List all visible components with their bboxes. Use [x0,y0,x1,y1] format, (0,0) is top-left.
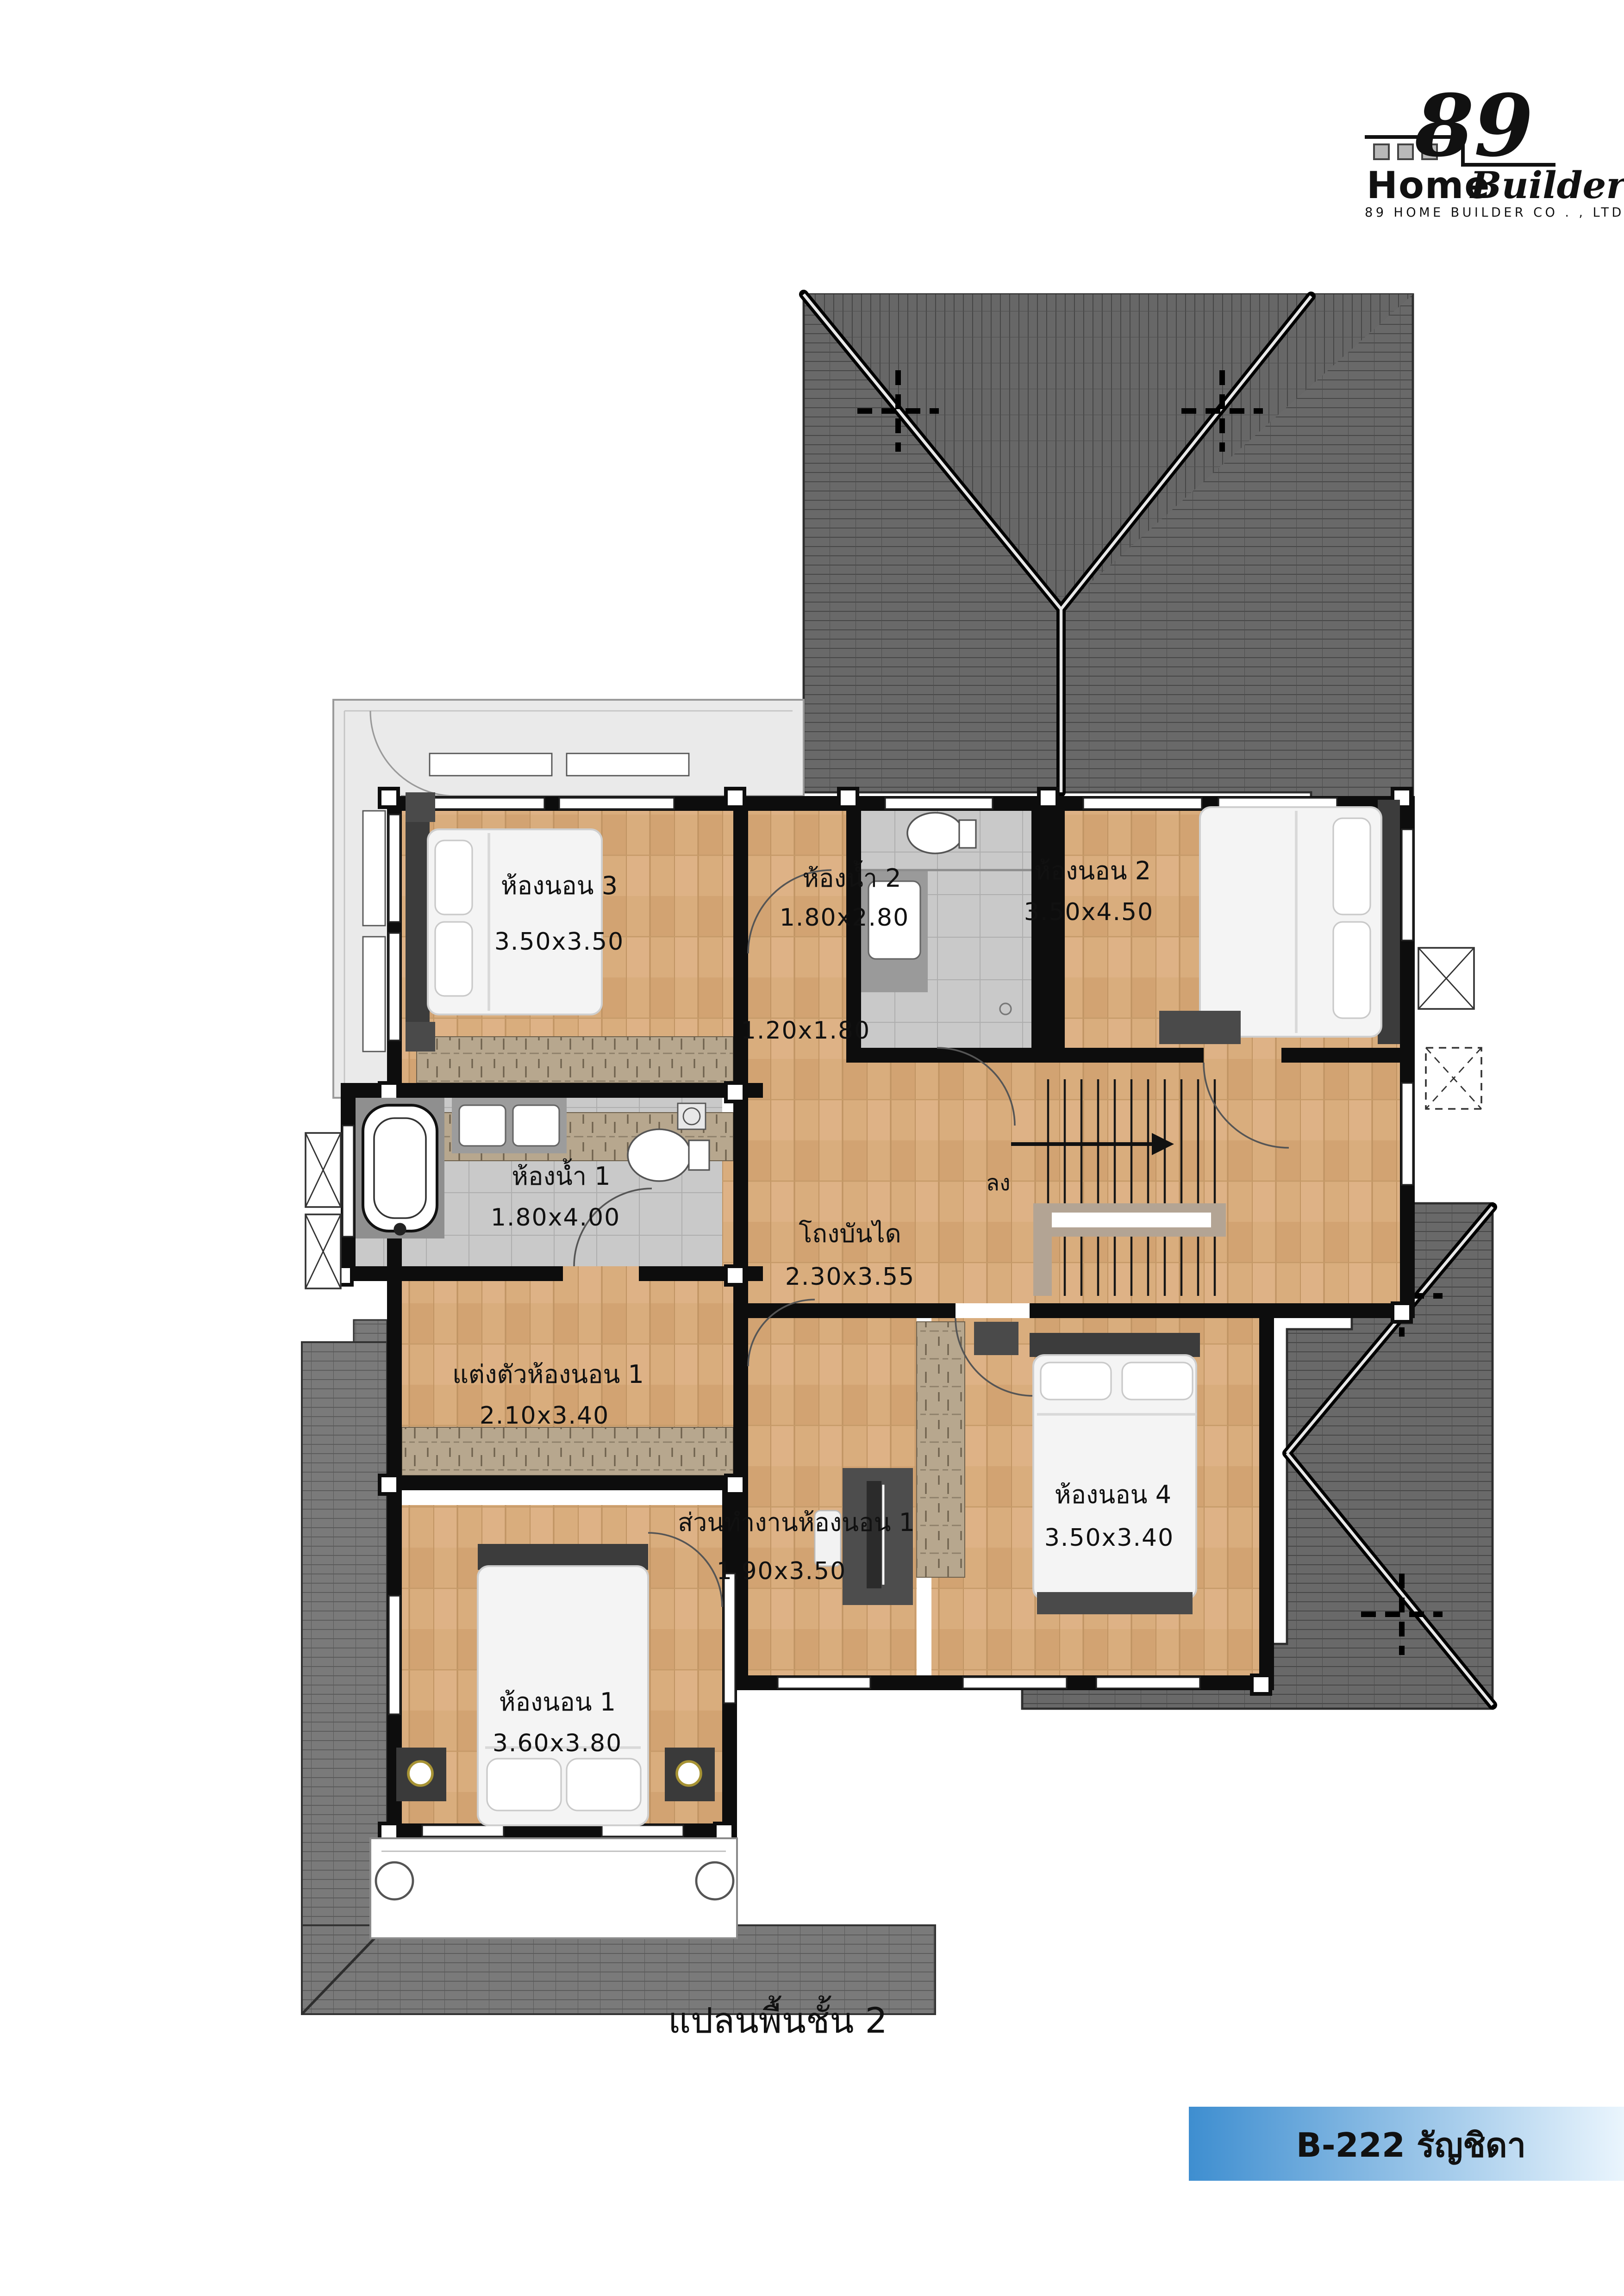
dressing-size: 2.10x3.40 [480,1402,609,1430]
stairhall-name: โถงบันได [799,1219,901,1248]
balcony-column-icon [376,1862,413,1899]
bedroom3-wardrobe [417,1037,733,1083]
dressing-name: แต่งตัวห้องนอน 1 [452,1360,644,1389]
toilet-icon [628,1129,691,1181]
work-area-name: ส่วนทำงานห้องนอน 1 [678,1508,915,1537]
dressing-wardrobe-bottom [402,1427,733,1475]
bedroom1-size: 3.60x3.80 [493,1730,622,1757]
bathroom2-size: 1.80x2.80 [780,904,909,932]
plan-caption: แปลนพื้นชั้น 2 [668,1995,887,2041]
sink-icon [459,1105,506,1146]
stairs-down-label: ลง [986,1170,1011,1196]
bathroom2-name: ห้องน้ำ 2 [802,860,901,893]
bedroom1-name: ห้องนอน 1 [499,1687,616,1717]
bedroom2-name: ห้องนอน 2 [1034,856,1151,885]
bathroom1-name: ห้องน้ำ 1 [512,1158,610,1191]
bedroom1-balcony [370,1838,737,1938]
sink-icon [513,1105,559,1146]
floor-plan-page: 89 Home Builder 89 HOME BUILDER CO . , L… [0,0,1624,2296]
corridor-size: 1.20x1.80 [741,1017,870,1045]
logo-builder-text: Builder [1469,163,1624,207]
exhaust-fan-icon [678,1103,706,1129]
bedroom4-name: ห้องนอน 4 [1055,1480,1171,1509]
bedroom3-bed [406,792,602,1052]
stairhall-size: 2.30x3.55 [785,1263,915,1291]
toilet-icon [907,813,963,853]
bedroom3-size: 3.50x3.50 [494,928,624,956]
bathroom1-size: 1.80x4.00 [491,1204,620,1232]
bedroom2-dresser [1159,1011,1241,1044]
banner-label: B-222 รัญชิดา [1296,2126,1526,2165]
floor-plan-drawing: 89 Home Builder 89 HOME BUILDER CO . , L… [0,0,1624,2296]
logo-number: 89 [1414,76,1533,176]
balcony-column-icon [696,1862,733,1899]
model-banner: B-222 รัญชิดา [1189,2107,1624,2181]
bedroom3-name: ห้องนอน 3 [501,871,618,900]
work-area-size: 1.90x3.50 [717,1557,846,1585]
bedroom4-wardrobe [917,1322,965,1577]
logo-company-line: 89 HOME BUILDER CO . , LTD . [1365,205,1624,220]
bedroom4-size: 3.50x3.40 [1044,1524,1174,1552]
bedroom2-size: 3.50x4.50 [1024,898,1154,926]
top-roof [804,294,1413,848]
